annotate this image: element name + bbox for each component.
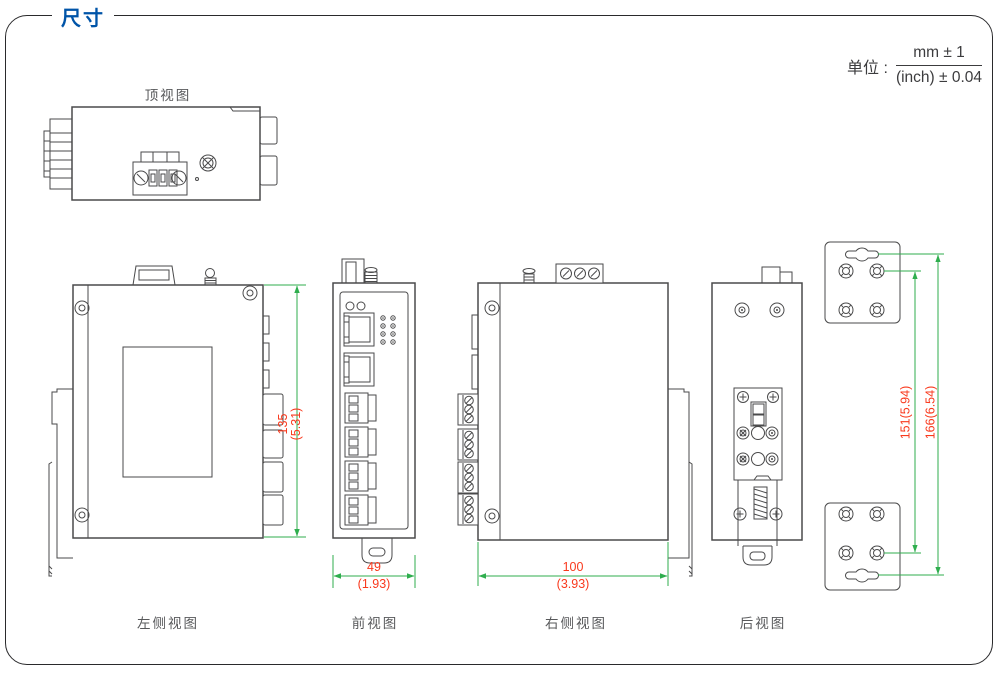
units-mm: mm ± 1	[896, 44, 982, 66]
dimension-bracket-screw-span: 151(5.94)	[900, 378, 913, 448]
dimension-front-width-mm: 49	[354, 561, 394, 574]
left-side-view-label: 左侧视图	[108, 612, 228, 632]
wall-mount-brackets-drawing	[825, 242, 900, 590]
top-view-drawing	[44, 107, 277, 200]
rear-view-label: 后视图	[713, 612, 813, 632]
dimension-depth-inch: (3.93)	[548, 578, 598, 591]
right-side-view-label: 右侧视图	[516, 612, 636, 632]
front-view-drawing	[333, 259, 415, 563]
dimension-front-width-inch: (1.93)	[349, 578, 399, 591]
units-inch: (inch) ± 0.04	[896, 66, 982, 87]
page-title: 尺寸	[52, 2, 114, 31]
dimension-height-text: 135 (5.31)	[277, 396, 303, 452]
front-view-label: 前视图	[325, 612, 425, 632]
rear-view-drawing	[712, 267, 802, 565]
units-note: 单位 : mm ± 1 (inch) ± 0.04	[847, 44, 982, 87]
top-view-label: 顶视图	[118, 84, 218, 104]
dimension-diagram-page: 尺寸 单位 : mm ± 1 (inch) ± 0.04	[0, 0, 1000, 677]
dimension-depth-mm: 100	[553, 561, 593, 574]
units-label: 单位 :	[847, 54, 888, 78]
left-side-view-drawing	[49, 266, 283, 576]
right-side-view-drawing	[458, 264, 692, 576]
dimension-bracket-overall-span: 166(6.54)	[925, 378, 938, 448]
dimension-height-inch: (5.31)	[290, 396, 303, 452]
units-fraction: mm ± 1 (inch) ± 0.04	[896, 44, 982, 87]
